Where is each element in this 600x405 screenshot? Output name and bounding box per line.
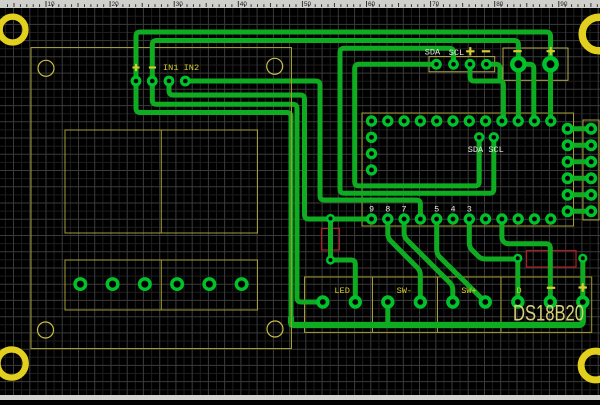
svg-text:5: 5 [434, 204, 439, 214]
svg-text:3: 3 [467, 204, 472, 214]
svg-text:SW+: SW+ [461, 286, 476, 296]
svg-text:SCL: SCL [449, 48, 464, 58]
svg-text:30: 30 [176, 1, 184, 8]
svg-text:50: 50 [304, 1, 312, 8]
svg-text:LED: LED [334, 286, 349, 296]
svg-text:7: 7 [402, 204, 407, 214]
svg-text:20: 20 [112, 1, 120, 8]
svg-text:9: 9 [369, 204, 374, 214]
svg-text:60: 60 [368, 1, 376, 8]
svg-text:80: 80 [496, 1, 504, 8]
svg-text:SW-: SW- [397, 286, 412, 296]
svg-text:8: 8 [385, 204, 390, 214]
svg-text:SDA: SDA [425, 48, 441, 58]
svg-text:IN1 IN2: IN1 IN2 [163, 63, 199, 73]
svg-text:4: 4 [450, 204, 455, 214]
svg-text:D: D [517, 286, 522, 296]
svg-text:DS18B20: DS18B20 [513, 300, 584, 325]
svg-text:SDA SCL: SDA SCL [468, 145, 504, 155]
svg-text:90: 90 [560, 1, 568, 8]
svg-text:70: 70 [432, 1, 440, 8]
svg-text:40: 40 [240, 1, 248, 8]
svg-text:10: 10 [48, 1, 56, 8]
